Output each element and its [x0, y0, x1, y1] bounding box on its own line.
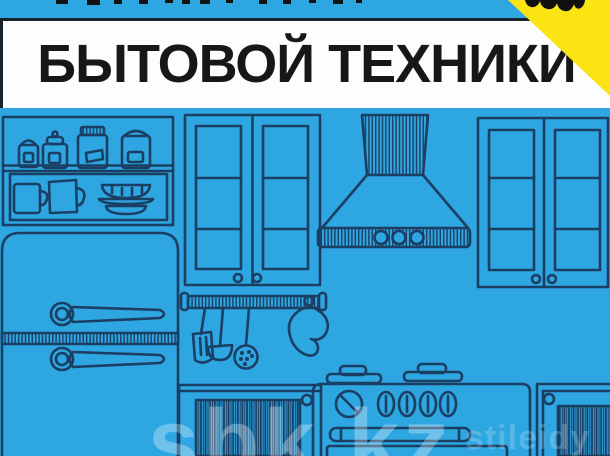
wall-cabinet-right	[478, 118, 608, 287]
poster-title: БЫТОВОЙ ТЕХНИКИ	[37, 33, 575, 95]
appliance-ad-poster: БЫТОВОЙ ТЕХНИКИ	[0, 0, 610, 456]
cropped-text-fragments	[0, 0, 400, 8]
jar-icon	[19, 141, 38, 168]
watermark-secondary: stileidy	[465, 419, 590, 456]
wall-cabinet-left	[185, 115, 320, 285]
scalloped-badge-icon	[522, 0, 592, 14]
jar-icon	[43, 132, 67, 169]
skimmer-icon	[235, 308, 258, 369]
range-hood	[318, 115, 470, 247]
pitcher-icon	[49, 180, 84, 213]
watermark-primary: sbk.kz	[148, 390, 453, 456]
shelf-unit	[3, 117, 173, 225]
bowl-stack-icon	[99, 185, 153, 214]
headline-band: БЫТОВОЙ ТЕХНИКИ	[0, 18, 610, 108]
top-strip	[0, 0, 610, 18]
utensil-rail	[181, 293, 328, 369]
canister-icon	[78, 127, 107, 168]
mug-icon	[14, 184, 47, 213]
jar-icon	[122, 131, 150, 168]
